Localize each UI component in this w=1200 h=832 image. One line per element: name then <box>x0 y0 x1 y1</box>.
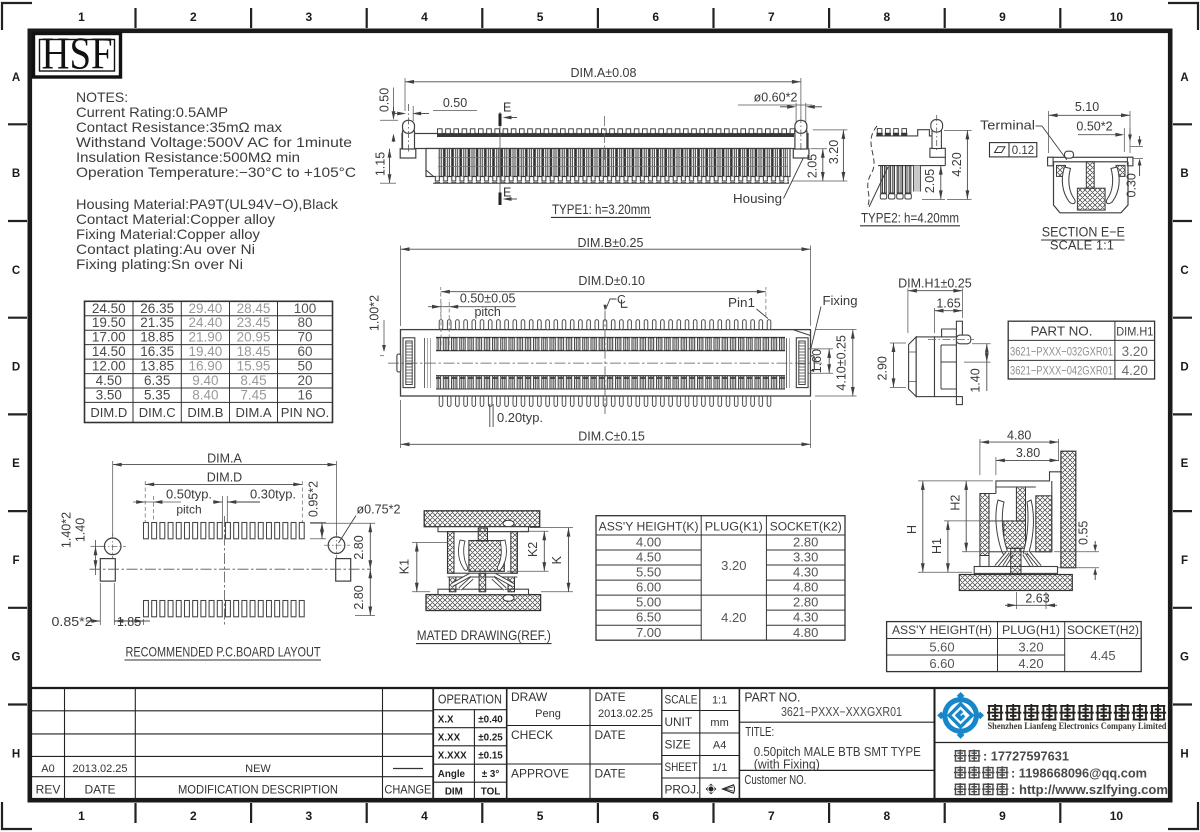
svg-text:6: 6 <box>652 809 659 823</box>
svg-text:7.45: 7.45 <box>240 388 266 403</box>
svg-text:: 1198668096@qq.com: : 1198668096@qq.com <box>1011 765 1147 780</box>
svg-text:6.35: 6.35 <box>144 373 170 388</box>
svg-text:MODIFICATION DESCRIPTION: MODIFICATION DESCRIPTION <box>178 783 338 797</box>
svg-text:9: 9 <box>999 10 1006 24</box>
svg-text:9: 9 <box>999 809 1006 823</box>
svg-text:G: G <box>1180 652 1189 664</box>
svg-text:Contact Material:Copper allo: Contact Material:Copper alloy <box>76 211 275 227</box>
svg-text:2.05: 2.05 <box>923 169 937 193</box>
svg-text:DIM.D±0.10: DIM.D±0.10 <box>578 274 645 288</box>
svg-text:DRAW: DRAW <box>511 690 548 704</box>
svg-text:D: D <box>12 362 20 374</box>
svg-text:DATE: DATE <box>595 690 626 704</box>
svg-text:H: H <box>1180 748 1188 760</box>
svg-text:Withstand Voltage:500V AC f: Withstand Voltage:500V AC for 1minute <box>76 134 352 150</box>
svg-text:Insulation Resistance:500MΩ: Insulation Resistance:500MΩ min <box>76 149 300 165</box>
svg-text:0.50: 0.50 <box>378 88 392 112</box>
svg-text:H2: H2 <box>948 495 962 511</box>
svg-text:PLUG(H1): PLUG(H1) <box>1002 623 1060 637</box>
svg-text:ASS'Y HEIGHT(K): ASS'Y HEIGHT(K) <box>599 520 699 534</box>
svg-text:9.40: 9.40 <box>192 373 218 388</box>
svg-text:TOL: TOL <box>481 787 500 798</box>
svg-text:6.00: 6.00 <box>636 580 661 595</box>
svg-text:B: B <box>12 168 20 180</box>
svg-text:4.20: 4.20 <box>1018 656 1043 671</box>
svg-text:3.80: 3.80 <box>1016 446 1040 460</box>
svg-text:A: A <box>12 72 20 84</box>
svg-text:pitch: pitch <box>176 503 201 517</box>
svg-text:E: E <box>503 101 511 115</box>
svg-text:10: 10 <box>1110 809 1124 823</box>
svg-text:DIM: DIM <box>445 787 463 798</box>
svg-text:E: E <box>1181 458 1189 470</box>
svg-text:3.50: 3.50 <box>96 388 122 403</box>
svg-text:3621−PXXX−XXXGXR01: 3621−PXXX−XXXGXR01 <box>781 705 902 719</box>
svg-text:ø0.60*2: ø0.60*2 <box>754 91 798 105</box>
svg-text:3.20: 3.20 <box>1018 640 1043 655</box>
svg-text:1.65: 1.65 <box>936 297 960 311</box>
svg-text:5: 5 <box>537 809 544 823</box>
svg-text:H: H <box>905 525 919 534</box>
svg-text:: http://www.szlfying.com: : http://www.szlfying.com <box>1011 782 1168 797</box>
svg-text:4.20: 4.20 <box>721 610 746 625</box>
svg-text:7.00: 7.00 <box>636 625 661 640</box>
svg-text:14.50: 14.50 <box>92 344 126 359</box>
svg-text:6.60: 6.60 <box>929 656 954 671</box>
svg-text:4: 4 <box>421 10 428 24</box>
svg-text:A: A <box>1180 72 1188 84</box>
svg-text:7: 7 <box>768 809 775 823</box>
svg-text:B: B <box>1180 168 1188 180</box>
svg-text:PLUG(K1): PLUG(K1) <box>705 520 763 534</box>
svg-text:SOCKET(H2): SOCKET(H2) <box>1067 623 1139 637</box>
svg-text:DIM.B: DIM.B <box>187 405 223 420</box>
svg-text:19.40: 19.40 <box>189 344 223 359</box>
svg-text:3621−PXXX−042GXR01: 3621−PXXX−042GXR01 <box>1010 364 1113 378</box>
svg-text:18.45: 18.45 <box>237 344 271 359</box>
svg-text:3: 3 <box>306 10 313 24</box>
svg-text:A0: A0 <box>41 763 54 775</box>
svg-text:X.XXX: X.XXX <box>438 751 467 762</box>
svg-text:1: 1 <box>78 10 85 24</box>
svg-text:1.60: 1.60 <box>810 349 824 373</box>
svg-text:NOTES:: NOTES: <box>76 89 128 105</box>
svg-text:20: 20 <box>297 373 312 388</box>
svg-text:PROJ.: PROJ. <box>665 783 700 797</box>
svg-text:CHECK: CHECK <box>511 728 553 742</box>
svg-text:0.85*2: 0.85*2 <box>52 615 93 629</box>
svg-text:1.85: 1.85 <box>117 615 141 629</box>
svg-text:F: F <box>12 555 19 567</box>
svg-text:Shenzhen Lianfeng Electronics: Shenzhen Lianfeng Electronics Company Li… <box>988 722 1168 732</box>
svg-text:17.00: 17.00 <box>92 330 126 345</box>
svg-text:4.80: 4.80 <box>793 580 818 595</box>
svg-text:Fixing Material:Copper alloy: Fixing Material:Copper alloy <box>76 226 260 242</box>
svg-text:DIM.H1: DIM.H1 <box>1116 325 1153 339</box>
svg-text:3.20: 3.20 <box>1122 344 1148 359</box>
svg-text:1.40: 1.40 <box>73 518 87 542</box>
svg-text:10: 10 <box>1110 10 1124 24</box>
svg-text:5.60: 5.60 <box>929 640 954 655</box>
svg-text:4.50: 4.50 <box>636 550 661 565</box>
svg-text:Customer NO.: Customer NO. <box>744 773 806 787</box>
svg-text:TITLE:: TITLE: <box>745 725 774 739</box>
svg-text:K: K <box>550 555 564 564</box>
svg-text:D: D <box>1180 362 1188 374</box>
svg-text:4.10±0.25: 4.10±0.25 <box>834 335 848 391</box>
svg-text:± 3°: ± 3° <box>482 769 500 780</box>
svg-text:0.30typ.: 0.30typ. <box>250 488 296 502</box>
svg-text:DATE: DATE <box>595 728 626 742</box>
svg-text:0.50typ.: 0.50typ. <box>166 488 212 502</box>
svg-text:H1: H1 <box>930 538 944 554</box>
svg-text:DIM.A: DIM.A <box>235 405 271 420</box>
svg-text:Contact Resistance:35mΩ max: Contact Resistance:35mΩ max <box>76 119 282 135</box>
svg-text:PART NO.: PART NO. <box>1031 325 1093 339</box>
svg-text:15.95: 15.95 <box>237 359 271 374</box>
svg-text:24.50: 24.50 <box>92 301 126 316</box>
svg-text:±0.15: ±0.15 <box>478 751 503 762</box>
svg-text:6.50: 6.50 <box>636 610 661 625</box>
svg-text:2.63: 2.63 <box>1025 592 1049 606</box>
svg-text:2013.02.25: 2013.02.25 <box>598 708 653 720</box>
svg-text:PART NO.: PART NO. <box>744 691 800 705</box>
svg-text:Terminal: Terminal <box>980 118 1035 133</box>
svg-text:DIM.A: DIM.A <box>207 452 242 466</box>
svg-text:4.80: 4.80 <box>1007 429 1031 443</box>
svg-text:2.80: 2.80 <box>793 535 818 550</box>
svg-text:3.30: 3.30 <box>793 550 818 565</box>
svg-text:3621−PXXX−032GXR01: 3621−PXXX−032GXR01 <box>1010 345 1113 359</box>
svg-text:Peng: Peng <box>535 708 561 720</box>
svg-text:0.30: 0.30 <box>1124 173 1138 197</box>
svg-text:PIN NO.: PIN NO. <box>281 405 329 420</box>
svg-text:SCALE: SCALE <box>665 693 698 707</box>
svg-text:18.85: 18.85 <box>140 330 174 345</box>
svg-text:3.20: 3.20 <box>721 558 746 573</box>
svg-text:X.X: X.X <box>438 715 454 726</box>
svg-text:0.12: 0.12 <box>1012 145 1034 157</box>
svg-text:Current Rating:0.5AMP: Current Rating:0.5AMP <box>76 104 228 120</box>
svg-text:E: E <box>503 186 511 200</box>
svg-text:1.15: 1.15 <box>374 152 388 176</box>
svg-text:8.45: 8.45 <box>240 373 266 388</box>
svg-text:2.90: 2.90 <box>875 356 889 380</box>
svg-text:: 17727597631: : 17727597631 <box>983 749 1069 764</box>
svg-text:28.45: 28.45 <box>237 301 271 316</box>
svg-text:Operation Temperature:−30°C: Operation Temperature:−30°C to +105°C <box>76 164 356 180</box>
svg-text:5.50: 5.50 <box>636 565 661 580</box>
svg-text:26.35: 26.35 <box>140 301 174 316</box>
svg-text:20.95: 20.95 <box>237 330 271 345</box>
svg-text:2: 2 <box>190 809 197 823</box>
svg-text:16.90: 16.90 <box>189 359 223 374</box>
svg-text:DIM.A±0.08: DIM.A±0.08 <box>571 66 637 80</box>
svg-text:Fixing plating:Sn over Ni: Fixing plating:Sn over Ni <box>76 256 243 272</box>
svg-text:DIM.C±0.15: DIM.C±0.15 <box>578 430 645 444</box>
svg-text:SIZE: SIZE <box>665 738 691 752</box>
svg-text:5.00: 5.00 <box>636 595 661 610</box>
svg-text:12.00: 12.00 <box>92 359 126 374</box>
svg-text:21.35: 21.35 <box>140 315 174 330</box>
svg-text:0.55: 0.55 <box>1076 521 1090 545</box>
svg-text:2: 2 <box>190 10 197 24</box>
svg-text:NEW: NEW <box>245 763 271 775</box>
svg-text:13.85: 13.85 <box>140 359 174 374</box>
svg-text:1.40: 1.40 <box>968 368 982 392</box>
svg-text:1.00*2: 1.00*2 <box>368 295 382 331</box>
svg-text:23.45: 23.45 <box>237 315 271 330</box>
svg-text:DIM.H1±0.25: DIM.H1±0.25 <box>898 277 972 291</box>
svg-text:Housing: Housing <box>733 191 782 206</box>
svg-text:0.50: 0.50 <box>443 96 467 110</box>
svg-text:60: 60 <box>297 344 312 359</box>
svg-text:1: 1 <box>78 809 85 823</box>
svg-text:4.30: 4.30 <box>793 610 818 625</box>
svg-text:5.35: 5.35 <box>144 388 170 403</box>
svg-text:70: 70 <box>297 330 312 345</box>
svg-text:K2: K2 <box>526 542 540 557</box>
svg-text:0.50±0.05: 0.50±0.05 <box>460 292 516 306</box>
svg-text:0.95*2: 0.95*2 <box>306 481 320 517</box>
svg-text:4.30: 4.30 <box>793 565 818 580</box>
svg-text:3: 3 <box>306 809 313 823</box>
svg-text:Pin1: Pin1 <box>728 296 755 310</box>
svg-text:CHANGE: CHANGE <box>384 785 431 797</box>
svg-text:4.00: 4.00 <box>636 535 661 550</box>
svg-text:1/1: 1/1 <box>712 762 727 774</box>
svg-text:3.20: 3.20 <box>827 140 841 164</box>
svg-text:100: 100 <box>294 301 317 316</box>
svg-text:DIM.C: DIM.C <box>139 405 176 420</box>
svg-text:HSF: HSF <box>42 28 113 79</box>
svg-text:1:1: 1:1 <box>712 695 727 707</box>
svg-text:2013.02.25: 2013.02.25 <box>72 763 127 775</box>
svg-text:TYPE1: h=3.20mm: TYPE1: h=3.20mm <box>552 202 650 217</box>
svg-text:mm: mm <box>710 717 728 729</box>
svg-text:(with Fixing): (with Fixing) <box>754 757 820 771</box>
svg-text:2.05: 2.05 <box>805 154 819 178</box>
svg-text:7: 7 <box>768 10 775 24</box>
svg-text:ø0.75*2: ø0.75*2 <box>357 503 401 517</box>
svg-text:±0.40: ±0.40 <box>478 715 503 726</box>
svg-text:DIM.D: DIM.D <box>90 405 127 420</box>
svg-text:80: 80 <box>297 315 312 330</box>
svg-text:DATE: DATE <box>84 783 115 797</box>
svg-text:DATE: DATE <box>595 767 626 781</box>
svg-text:±0.25: ±0.25 <box>478 733 503 744</box>
svg-text:A4: A4 <box>713 740 726 752</box>
svg-text:2.80: 2.80 <box>352 585 366 609</box>
svg-text:UNIT: UNIT <box>665 715 693 729</box>
svg-text:8.40: 8.40 <box>192 388 218 403</box>
svg-text:G: G <box>12 652 21 664</box>
svg-text:2.80: 2.80 <box>793 595 818 610</box>
svg-text:RECOMMENDED P.C.BOARD LAYOUT: RECOMMENDED P.C.BOARD LAYOUT <box>126 645 321 660</box>
svg-text:Angle: Angle <box>438 769 466 780</box>
svg-text:6: 6 <box>652 10 659 24</box>
svg-text:0.20typ.: 0.20typ. <box>497 411 543 425</box>
svg-text:4.45: 4.45 <box>1090 648 1115 663</box>
svg-text:Contact plating:Au over Ni: Contact plating:Au over Ni <box>76 241 255 257</box>
svg-text:X.XX: X.XX <box>438 733 461 744</box>
svg-text:OPERATION: OPERATION <box>438 692 502 707</box>
svg-text:24.40: 24.40 <box>189 315 223 330</box>
svg-text:16.35: 16.35 <box>140 344 174 359</box>
svg-text:2.80: 2.80 <box>352 535 366 559</box>
svg-text:0.50*2: 0.50*2 <box>1076 120 1112 134</box>
svg-text:4.80: 4.80 <box>793 625 818 640</box>
svg-text:C: C <box>12 265 20 277</box>
svg-text:1.40*2: 1.40*2 <box>60 512 74 548</box>
svg-text:REV: REV <box>36 783 61 797</box>
svg-text:5.10: 5.10 <box>1075 100 1099 114</box>
svg-text:SOCKET(K2): SOCKET(K2) <box>770 520 842 534</box>
svg-text:ASS'Y HEIGHT(H): ASS'Y HEIGHT(H) <box>892 623 992 637</box>
svg-text:APPROVE: APPROVE <box>511 767 569 781</box>
svg-text:TYPE2: h=4.20mm: TYPE2: h=4.20mm <box>861 211 959 226</box>
svg-text:SHEET: SHEET <box>665 760 698 774</box>
svg-text:MATED DRAWING(REF.): MATED DRAWING(REF.) <box>417 628 551 643</box>
svg-text:16: 16 <box>297 388 312 403</box>
svg-text:K1: K1 <box>398 559 412 574</box>
svg-text:8: 8 <box>884 809 891 823</box>
svg-text:DIM.D: DIM.D <box>207 471 242 485</box>
svg-text:C: C <box>1180 265 1188 277</box>
svg-text:4: 4 <box>421 809 428 823</box>
svg-text:8: 8 <box>884 10 891 24</box>
svg-text:4.20: 4.20 <box>1122 363 1148 378</box>
svg-text:5: 5 <box>537 10 544 24</box>
svg-text:50: 50 <box>297 359 312 374</box>
svg-text:Fixing: Fixing <box>823 294 858 308</box>
svg-text:29.40: 29.40 <box>189 301 223 316</box>
svg-text:21.90: 21.90 <box>189 330 223 345</box>
svg-text:19.50: 19.50 <box>92 315 126 330</box>
svg-text:SCALE 1:1: SCALE 1:1 <box>1050 238 1114 253</box>
svg-text:F: F <box>1181 555 1188 567</box>
svg-text:H: H <box>12 748 20 760</box>
svg-text:Housing Material:PA9T(UL94V−O: Housing Material:PA9T(UL94V−O),Black <box>76 196 339 212</box>
svg-text:4.20: 4.20 <box>950 152 964 176</box>
svg-text:4.50: 4.50 <box>96 373 122 388</box>
svg-text:E: E <box>12 458 20 470</box>
svg-text:DIM.B±0.25: DIM.B±0.25 <box>578 236 644 250</box>
